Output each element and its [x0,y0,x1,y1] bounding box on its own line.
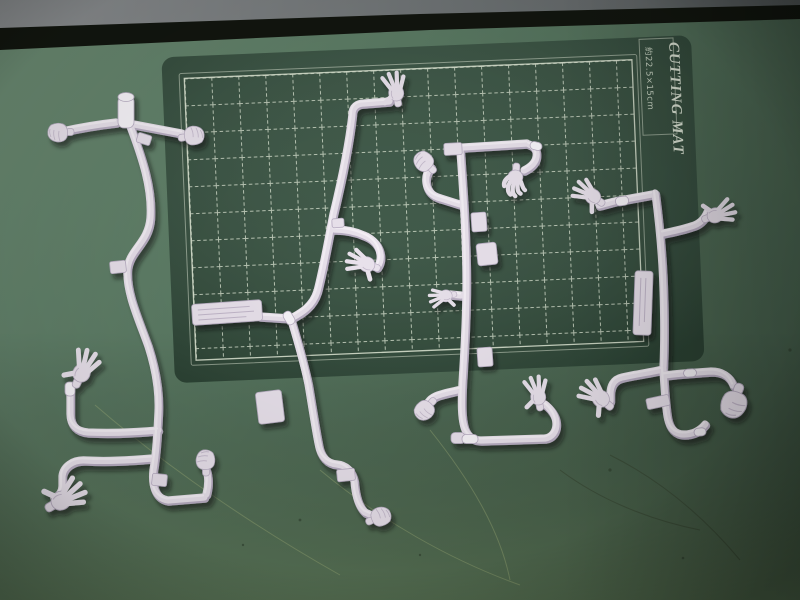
vignette [0,0,800,600]
scene: CUTTING MAT 約22.5×15cm [0,0,800,600]
photo-model-kit-sprues: CUTTING MAT 約22.5×15cm [0,0,800,600]
